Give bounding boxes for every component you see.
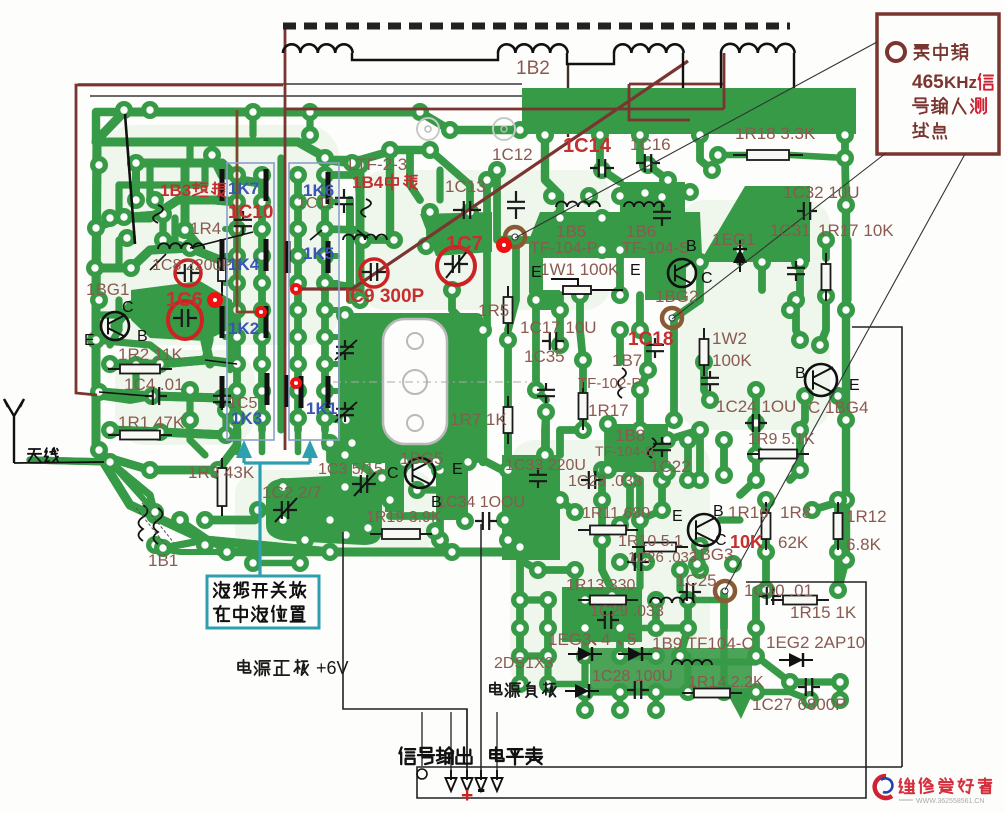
svg-text:B: B	[137, 328, 148, 345]
svg-text:E: E	[672, 508, 683, 525]
svg-text:C: C	[122, 299, 134, 316]
svg-text:1C13: 1C13	[445, 177, 486, 196]
svg-text:62K: 62K	[778, 533, 809, 552]
svg-text:1C34 1OOU: 1C34 1OOU	[437, 494, 525, 511]
svg-text:E: E	[630, 262, 641, 279]
svg-text:1K1: 1K1	[306, 399, 337, 418]
svg-text:C 1BG4: C 1BG4	[808, 398, 868, 417]
svg-text:1C24 1OU: 1C24 1OU	[716, 397, 796, 416]
svg-text:WWW.362558561.CN: WWW.362558561.CN	[916, 798, 984, 805]
svg-text:1EG1: 1EG1	[712, 230, 755, 249]
svg-text:C: C	[715, 532, 727, 549]
svg-text:1C26 .033: 1C26 .033	[628, 549, 697, 566]
svg-text:1C4 .01: 1C4 .01	[124, 375, 184, 394]
svg-text:1R10 5.1: 1R10 5.1	[618, 533, 683, 550]
svg-text:TF-104-S: TF-104-S	[595, 443, 654, 459]
svg-text:B: B	[431, 494, 442, 511]
svg-text:100K: 100K	[712, 351, 752, 370]
svg-text:1W2: 1W2	[712, 329, 747, 348]
svg-text:1C16: 1C16	[630, 135, 671, 154]
svg-text:1K6: 1K6	[303, 181, 334, 200]
svg-text:1R19 3.9K: 1R19 3.9K	[366, 509, 442, 526]
svg-text:1BG5: 1BG5	[400, 449, 443, 468]
svg-text:1C10: 1C10	[228, 202, 273, 223]
svg-text:1C14: 1C14	[563, 135, 612, 157]
svg-text:KHz: KHz	[944, 73, 977, 92]
svg-text:1C33 220U: 1C33 220U	[505, 457, 586, 474]
svg-text:+6V: +6V	[316, 658, 349, 678]
svg-text:TF-104-P: TF-104-P	[530, 240, 598, 257]
svg-text:1K5: 1K5	[303, 244, 334, 263]
svg-text:1C23 .033: 1C23 .033	[568, 473, 642, 490]
svg-text:1C25: 1C25	[676, 571, 717, 590]
svg-text:LTF-2-3: LTF-2-3	[348, 155, 407, 174]
svg-text:465: 465	[912, 72, 944, 93]
svg-text:1C12: 1C12	[492, 145, 533, 164]
svg-text:1EG2 2AP10: 1EG2 2AP10	[766, 633, 865, 652]
svg-text:IC9 300P: IC9 300P	[345, 286, 425, 307]
svg-text:1R2 11K: 1R2 11K	[118, 345, 184, 364]
svg-text:E: E	[849, 377, 860, 394]
svg-text:1C29 .033: 1C29 .033	[590, 603, 664, 620]
svg-text:E: E	[84, 332, 95, 349]
svg-text:1C31: 1C31	[770, 221, 811, 240]
svg-text:B: B	[686, 238, 697, 255]
svg-text:TF-104-S: TF-104-S	[622, 240, 690, 257]
svg-text:1R1 47K: 1R1 47K	[118, 413, 185, 432]
svg-text:-: -	[477, 775, 485, 803]
svg-text:C: C	[387, 465, 399, 482]
svg-text:1R13 330: 1R13 330	[566, 577, 635, 594]
svg-text:1C28 100U: 1C28 100U	[592, 668, 673, 685]
svg-text:1R3 43K: 1R3 43K	[188, 463, 255, 482]
svg-text:5: 5	[627, 630, 636, 649]
svg-text:1K3: 1K3	[231, 409, 262, 428]
svg-text:E: E	[452, 461, 463, 478]
svg-text:1R18 3.3K: 1R18 3.3K	[735, 124, 816, 143]
svg-text:B: B	[713, 503, 724, 520]
svg-text:1B3: 1B3	[160, 181, 191, 200]
svg-text:1C8 2200P: 1C8 2200P	[152, 257, 232, 274]
svg-text:1R9 5.1K: 1R9 5.1K	[748, 431, 815, 448]
svg-text:1B4: 1B4	[352, 173, 384, 192]
svg-text:1C17 10U: 1C17 10U	[520, 318, 597, 337]
svg-text:1B6: 1B6	[626, 222, 656, 241]
svg-text:1R17 10K: 1R17 10K	[818, 221, 894, 240]
svg-text:1R7 1K: 1R7 1K	[450, 410, 507, 429]
svg-text:B: B	[795, 365, 806, 382]
svg-text:1C35: 1C35	[524, 347, 565, 366]
svg-text:1R15 1K: 1R15 1K	[790, 603, 857, 622]
svg-text:1K4: 1K4	[228, 255, 260, 274]
svg-text:1R4: 1R4	[190, 219, 221, 238]
svg-text:2DS1X3: 2DS1X3	[494, 655, 554, 672]
svg-text:4: 4	[601, 630, 610, 649]
svg-text:1BG3: 1BG3	[690, 545, 733, 564]
svg-text:1BG2: 1BG2	[655, 287, 698, 306]
svg-text:1C6: 1C6	[166, 289, 203, 311]
svg-text:1K7: 1K7	[228, 179, 259, 198]
svg-text:1C7: 1C7	[446, 233, 483, 255]
svg-text:1R11 680: 1R11 680	[582, 505, 650, 522]
svg-text:1BG1: 1BG1	[86, 280, 129, 299]
svg-text:1B9 TF104-C: 1B9 TF104-C	[652, 634, 754, 653]
svg-text:1B5: 1B5	[556, 222, 586, 241]
svg-text:1C18: 1C18	[628, 329, 673, 350]
svg-text:1EG3: 1EG3	[548, 630, 591, 649]
svg-text:1R16: 1R16	[728, 503, 769, 522]
svg-text:6.8K: 6.8K	[846, 535, 882, 554]
svg-text:1C30 .01: 1C30 .01	[744, 581, 813, 600]
svg-text:1R17: 1R17	[588, 401, 629, 420]
svg-text:+: +	[461, 784, 473, 807]
svg-text:1B2: 1B2	[516, 58, 550, 79]
svg-text:E: E	[531, 264, 542, 281]
svg-text:1W1 100K: 1W1 100K	[540, 260, 620, 279]
svg-text:1B1: 1B1	[148, 551, 178, 570]
svg-text:1K2: 1K2	[228, 319, 259, 338]
svg-text:1C22: 1C22	[650, 457, 691, 476]
svg-text:1C3 5/15: 1C3 5/15	[318, 461, 383, 478]
svg-text:C: C	[701, 270, 713, 287]
svg-text:1R14 2.2K: 1R14 2.2K	[688, 674, 764, 691]
svg-text:1C32 10U: 1C32 10U	[783, 183, 860, 202]
svg-text:1R8: 1R8	[780, 503, 811, 522]
svg-text:1C2 2/7: 1C2 2/7	[262, 483, 322, 502]
svg-text:1R12: 1R12	[846, 507, 887, 526]
svg-text:1C27 6800P: 1C27 6800P	[752, 695, 847, 714]
svg-text:10K: 10K	[730, 532, 763, 552]
svg-text:1B7: 1B7	[612, 351, 642, 370]
svg-text:1R5: 1R5	[478, 301, 509, 320]
svg-text:TF-102-P: TF-102-P	[578, 375, 641, 392]
